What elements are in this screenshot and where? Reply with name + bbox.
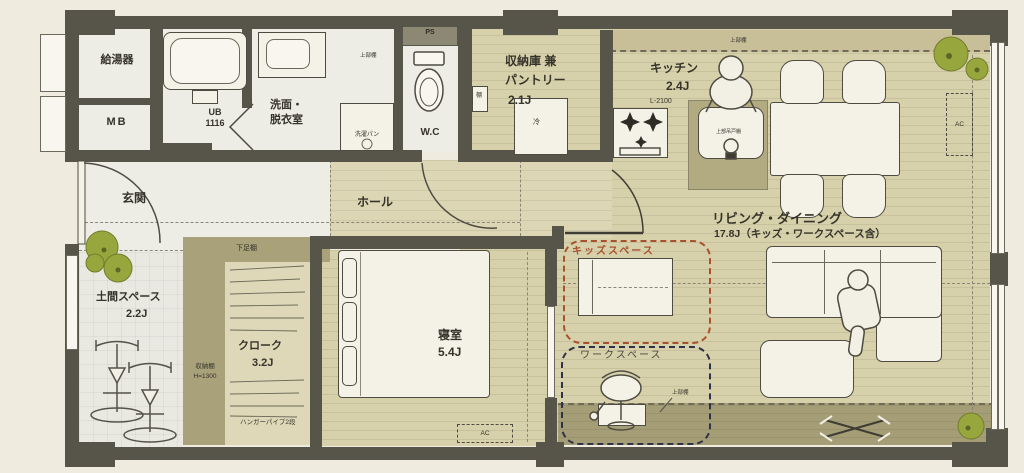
kitchen-upper-shelf-label: 上部棚 — [730, 38, 747, 44]
pantry-label-1: 収納庫 兼 — [505, 55, 556, 68]
entrance-label: 玄関 — [122, 192, 146, 205]
entrance-door — [78, 161, 160, 244]
shoe-shelf-label: 下足棚 — [236, 245, 257, 253]
washer-pan-label: 洗濯パン — [344, 132, 390, 139]
water-heater-label: 給湯器 — [85, 54, 149, 66]
plant-balcony — [958, 413, 984, 439]
bedroom-label: 寝室 — [438, 329, 462, 342]
kids-space-label: キッズスペース — [572, 246, 655, 257]
pantry-label-2: パントリー — [505, 74, 566, 87]
plant-entrance — [86, 231, 132, 282]
pantry-shelf-label: 棚 — [476, 93, 482, 100]
sink-faucet — [724, 139, 738, 159]
bedroom-area-label: 5.4J — [438, 346, 461, 359]
bicycle-1 — [91, 340, 143, 422]
person-sofa — [836, 270, 882, 357]
kitchen-label: キッチン — [650, 62, 698, 75]
upper-cabinet-label: 上部吊戸棚 — [716, 130, 741, 136]
washer-pan-drain — [362, 139, 372, 149]
kitchen-area-label: 2.4J — [666, 80, 689, 93]
cloak-area-label: 3.2J — [252, 357, 273, 369]
meter-box-label: MB — [85, 116, 149, 128]
hall-living-door — [565, 170, 643, 233]
unit-bath-label: UB — [190, 108, 240, 118]
cloak-label: クローク — [238, 340, 282, 352]
fridge-label: 冷 — [533, 119, 540, 127]
living-label: リビング・ダイニング — [712, 212, 842, 226]
washroom-label-1: 洗面・ — [270, 99, 332, 111]
toilet — [414, 52, 444, 111]
desk-chair — [590, 371, 641, 430]
plant-top-right — [934, 37, 988, 80]
doma-area-label: 2.2J — [126, 308, 147, 320]
pipe-space-label: PS — [402, 29, 458, 37]
storage-shelf-height-label: H=1300 — [187, 373, 223, 380]
balcony-cross-mark — [820, 416, 890, 441]
hanger-pipe-label: ハンガーパイプ2段 — [240, 419, 296, 426]
upper-shelf-leader-line — [660, 398, 672, 412]
workspace-label: ワークスペース — [580, 350, 663, 361]
washroom-hall-door — [422, 163, 497, 228]
washroom-label-2: 脱衣室 — [270, 114, 332, 126]
bicycle-2 — [124, 362, 176, 442]
washroom-upper-shelf-label: 上部棚 — [360, 53, 377, 59]
workspace-upper-shelf-label: 上部棚 — [672, 390, 689, 396]
living-area-label: 17.8J（キッズ・ワークスペース含） — [714, 229, 886, 241]
floor-plan: AC AC — [0, 0, 1024, 473]
doma-label: 土間スペース — [96, 291, 161, 303]
storage-shelf-label: 収納棚 — [187, 363, 223, 370]
person-kitchen — [706, 56, 756, 112]
wc-label: W.C — [403, 127, 457, 138]
unit-bath-size: 1116 — [190, 119, 240, 129]
hall-label: ホール — [357, 196, 393, 209]
kitchen-counter-length-label: L-2100 — [650, 98, 672, 106]
stove-burners — [620, 112, 663, 155]
pantry-area-label: 2.1J — [508, 94, 531, 107]
